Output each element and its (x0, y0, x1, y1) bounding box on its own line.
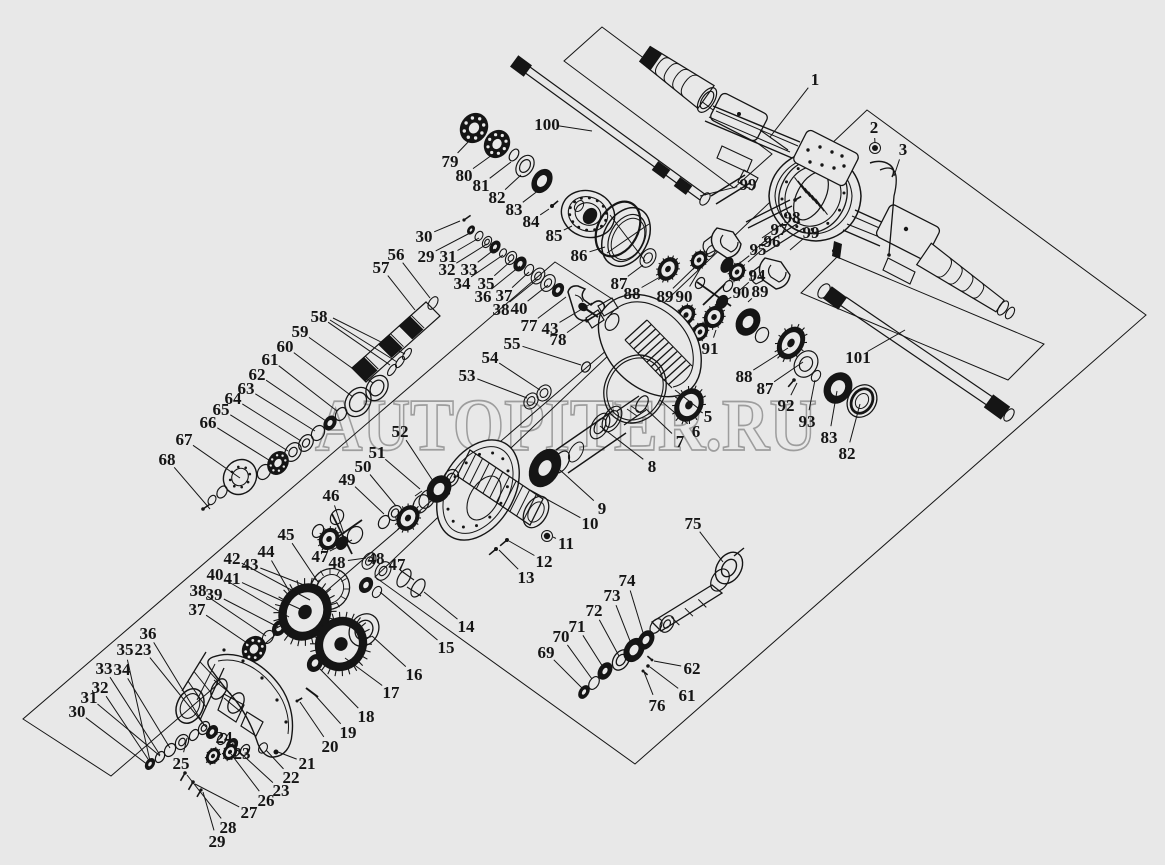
svg-text:80: 80 (456, 166, 473, 185)
svg-text:82: 82 (489, 188, 506, 207)
svg-text:49: 49 (339, 470, 356, 489)
svg-text:30: 30 (69, 702, 86, 721)
svg-text:29: 29 (418, 247, 435, 266)
svg-text:25: 25 (173, 754, 190, 773)
svg-text:76: 76 (649, 696, 666, 715)
svg-text:81: 81 (473, 176, 490, 195)
svg-text:42: 42 (224, 549, 241, 568)
svg-text:27: 27 (241, 803, 259, 822)
svg-text:40: 40 (207, 565, 224, 584)
svg-text:23: 23 (135, 640, 152, 659)
svg-text:21: 21 (299, 754, 316, 773)
svg-text:38: 38 (493, 300, 510, 319)
svg-text:33: 33 (96, 659, 113, 678)
svg-text:8: 8 (648, 457, 657, 476)
svg-text:72: 72 (586, 601, 603, 620)
svg-text:100: 100 (534, 115, 560, 134)
svg-text:34: 34 (454, 274, 472, 293)
svg-text:48: 48 (368, 549, 385, 568)
svg-text:66: 66 (200, 413, 217, 432)
svg-text:46: 46 (323, 486, 340, 505)
svg-text:53: 53 (459, 366, 476, 385)
svg-text:62: 62 (684, 659, 701, 678)
svg-text:83: 83 (506, 200, 523, 219)
svg-text:13: 13 (518, 568, 535, 587)
svg-text:29: 29 (209, 832, 226, 851)
svg-text:1: 1 (811, 70, 820, 89)
svg-text:43: 43 (242, 555, 259, 574)
svg-text:34: 34 (114, 660, 132, 679)
svg-text:78: 78 (550, 330, 567, 349)
svg-text:23: 23 (273, 781, 290, 800)
svg-text:16: 16 (406, 665, 423, 684)
svg-text:89: 89 (657, 287, 674, 306)
svg-text:57: 57 (373, 258, 391, 277)
svg-text:59: 59 (292, 322, 309, 341)
svg-text:93: 93 (799, 412, 816, 431)
svg-text:74: 74 (619, 571, 637, 590)
svg-text:61: 61 (679, 686, 696, 705)
svg-text:7: 7 (676, 432, 685, 451)
svg-text:18: 18 (358, 707, 375, 726)
svg-text:12: 12 (536, 552, 553, 571)
svg-text:52: 52 (392, 422, 409, 441)
svg-text:AUTOPITER.RU: AUTOPITER.RU (315, 385, 817, 467)
svg-text:44: 44 (258, 542, 276, 561)
svg-text:3: 3 (899, 140, 908, 159)
svg-text:58: 58 (311, 307, 328, 326)
svg-text:68: 68 (159, 450, 176, 469)
svg-text:86: 86 (571, 246, 588, 265)
svg-text:17: 17 (383, 683, 401, 702)
svg-text:47: 47 (312, 547, 330, 566)
svg-text:51: 51 (369, 443, 386, 462)
svg-text:24: 24 (216, 728, 234, 747)
svg-text:14: 14 (458, 617, 476, 636)
svg-text:10: 10 (582, 514, 599, 533)
svg-text:54: 54 (482, 348, 500, 367)
svg-text:41: 41 (224, 569, 241, 588)
svg-text:82: 82 (839, 444, 856, 463)
svg-text:20: 20 (322, 737, 339, 756)
svg-text:85: 85 (546, 226, 563, 245)
svg-text:87: 87 (757, 379, 775, 398)
svg-text:30: 30 (416, 227, 433, 246)
svg-text:47: 47 (389, 555, 407, 574)
svg-text:71: 71 (569, 617, 586, 636)
svg-text:92: 92 (778, 396, 795, 415)
svg-text:84: 84 (523, 212, 541, 231)
svg-text:39: 39 (206, 585, 223, 604)
svg-text:37: 37 (189, 600, 207, 619)
svg-text:90: 90 (676, 287, 693, 306)
svg-text:4: 4 (832, 239, 841, 258)
svg-text:26: 26 (258, 791, 275, 810)
svg-text:19: 19 (340, 723, 357, 742)
svg-text:99: 99 (803, 223, 820, 242)
svg-text:55: 55 (504, 334, 521, 353)
svg-text:48: 48 (329, 553, 346, 572)
svg-text:11: 11 (558, 534, 574, 553)
svg-text:75: 75 (685, 514, 702, 533)
svg-text:101: 101 (845, 348, 871, 367)
svg-text:90: 90 (733, 283, 750, 302)
svg-text:6: 6 (692, 422, 701, 441)
svg-text:70: 70 (553, 627, 570, 646)
svg-text:2: 2 (870, 118, 879, 137)
svg-text:9: 9 (598, 499, 607, 518)
svg-text:35: 35 (117, 640, 134, 659)
svg-text:56: 56 (388, 245, 405, 264)
svg-text:95: 95 (750, 240, 767, 259)
svg-text:91: 91 (702, 339, 719, 358)
svg-text:38: 38 (190, 581, 207, 600)
svg-text:83: 83 (821, 428, 838, 447)
svg-text:15: 15 (438, 638, 455, 657)
svg-text:67: 67 (176, 430, 194, 449)
svg-text:99: 99 (740, 175, 757, 194)
svg-text:60: 60 (277, 337, 294, 356)
svg-text:77: 77 (521, 316, 539, 335)
svg-text:88: 88 (624, 284, 641, 303)
svg-text:36: 36 (475, 287, 492, 306)
svg-text:45: 45 (278, 525, 295, 544)
svg-text:88: 88 (736, 367, 753, 386)
svg-text:89: 89 (752, 282, 769, 301)
svg-text:5: 5 (704, 407, 713, 426)
